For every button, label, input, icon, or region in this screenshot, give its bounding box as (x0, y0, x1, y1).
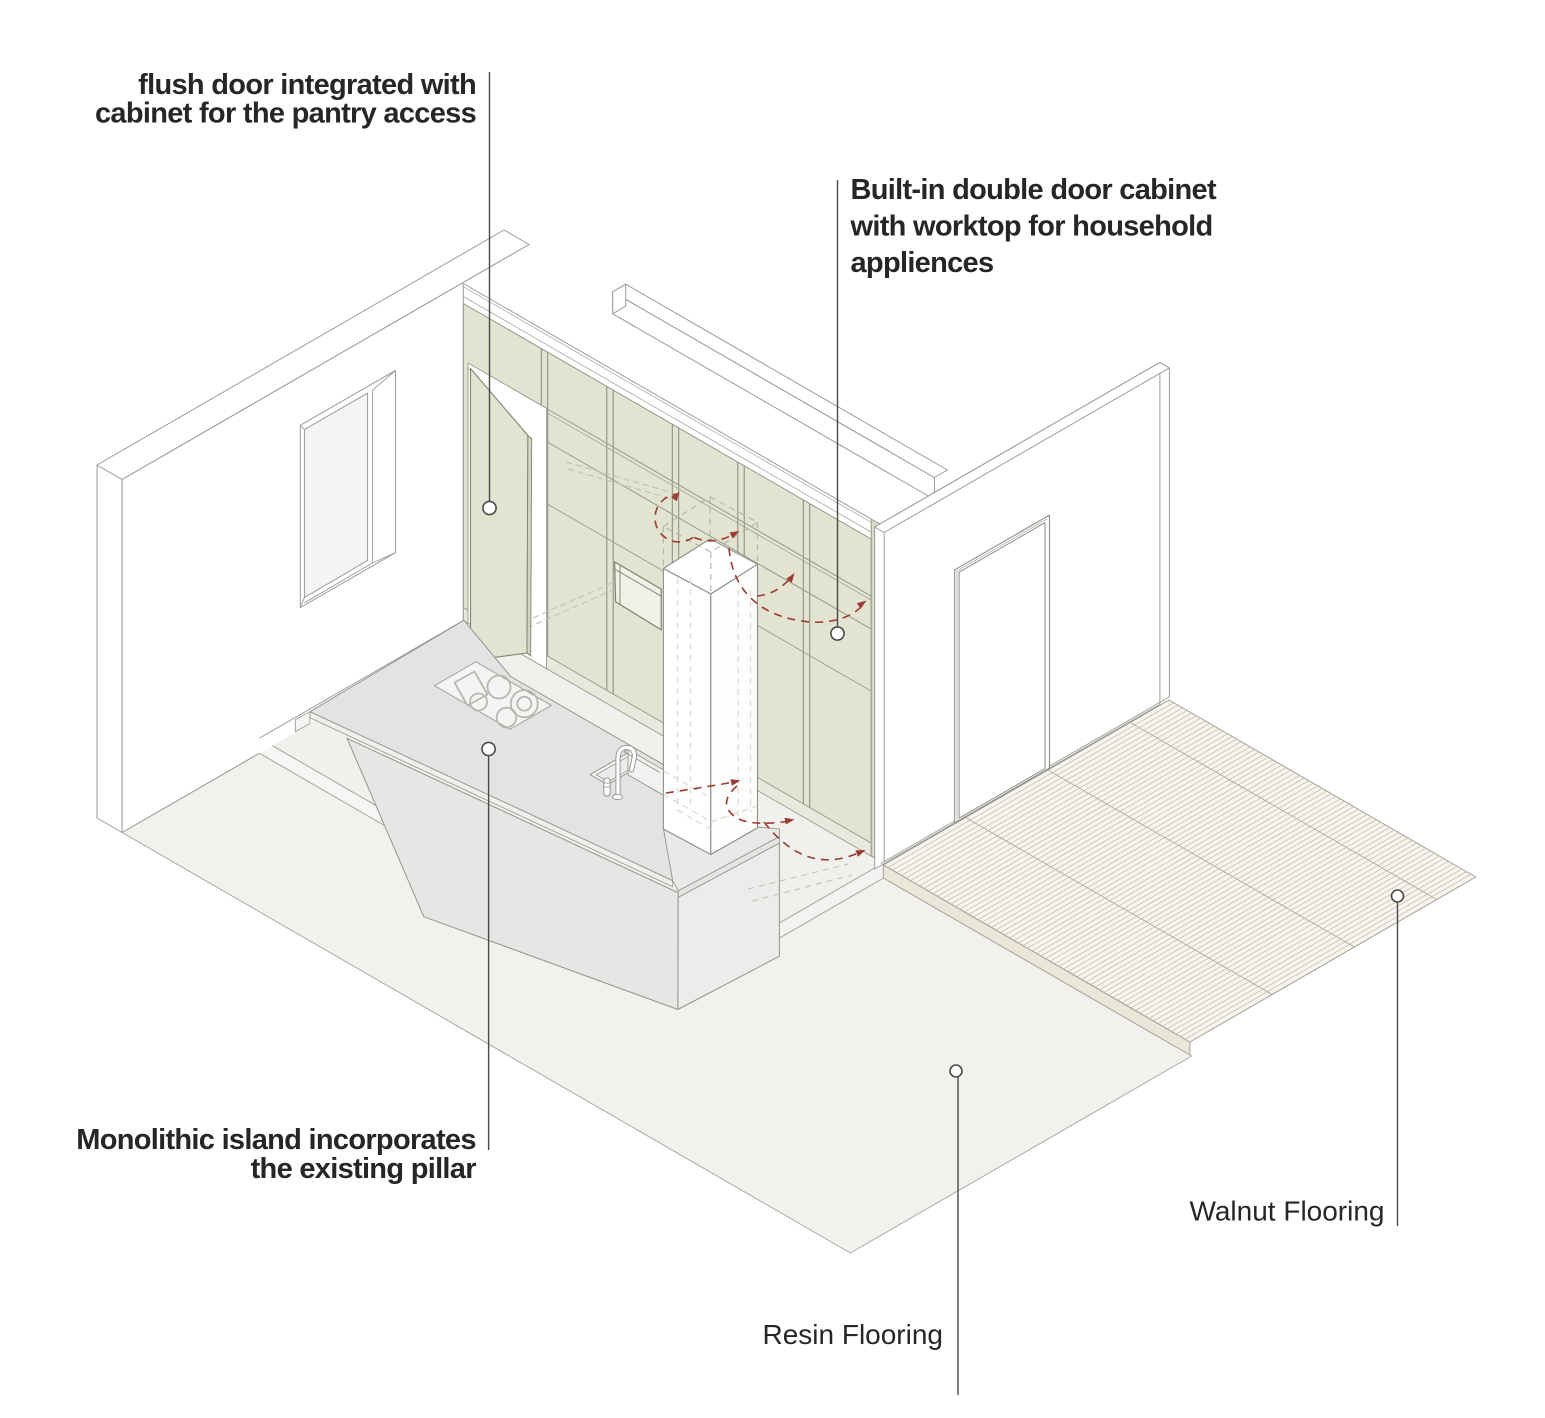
svg-text:Monolithic island incorporates: Monolithic island incorporates (76, 1124, 476, 1156)
svg-text:Resin Flooring: Resin Flooring (762, 1319, 943, 1350)
svg-text:flush door integrated with: flush door integrated with (138, 69, 476, 101)
svg-text:Walnut Flooring: Walnut Flooring (1189, 1195, 1384, 1226)
svg-text:with worktop for household: with worktop for household (850, 211, 1213, 243)
svg-text:cabinet for the pantry access: cabinet for the pantry access (95, 98, 476, 130)
svg-text:Built-in double door cabinet: Built-in double door cabinet (851, 174, 1217, 206)
svg-text:appliences: appliences (851, 247, 994, 279)
svg-text:the existing pillar: the existing pillar (251, 1153, 477, 1185)
